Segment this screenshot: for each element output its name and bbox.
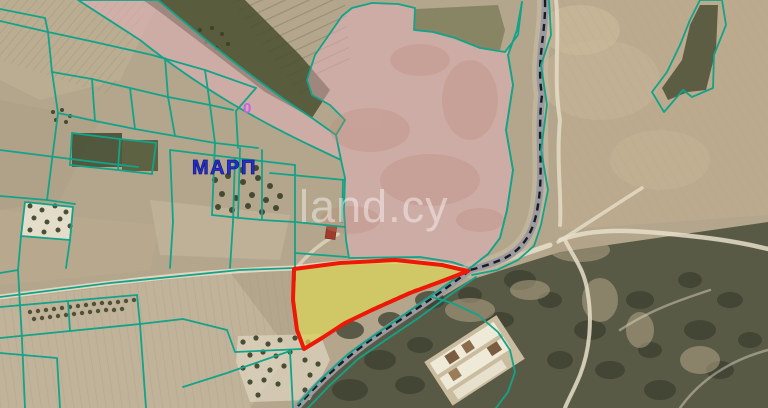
area-name-label: ΜΑΡΠ — [192, 157, 257, 179]
map-canvas[interactable]: ΜΑΡΠ 0 land.cy — [0, 0, 768, 408]
watermark-text: land.cy — [299, 181, 449, 232]
map-viewport[interactable]: ΜΑΡΠ 0 land.cy — [0, 0, 768, 408]
road-number-label: 0 — [243, 100, 251, 117]
